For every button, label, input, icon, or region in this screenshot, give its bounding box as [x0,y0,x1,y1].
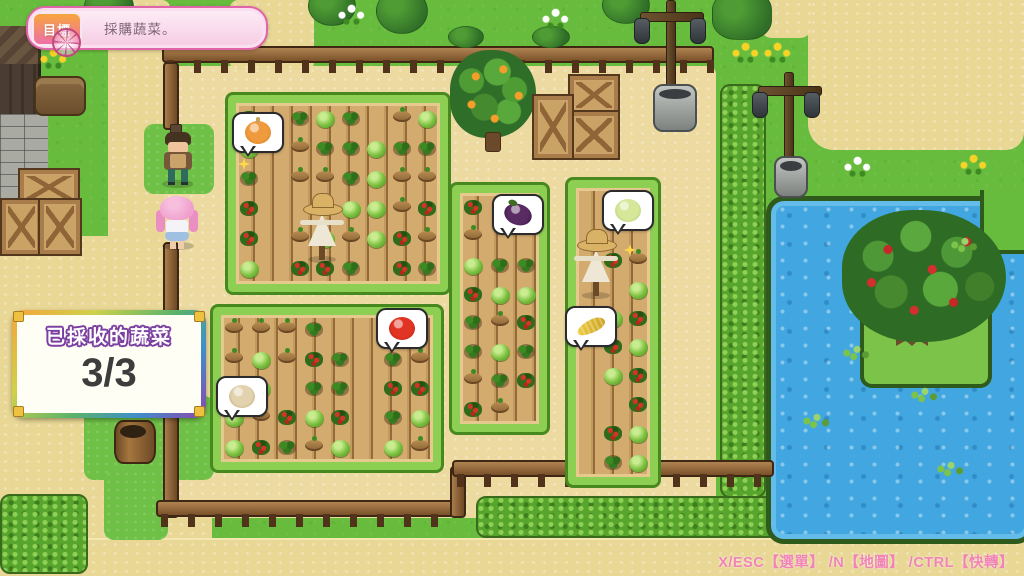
npc-farmer [158,130,198,188]
crop-seed [384,410,402,425]
crop-mound [411,440,429,451]
scarecrow-body [308,214,336,246]
crop-berry [629,311,647,326]
crop-berry [604,426,622,441]
flowers-yellow [958,152,988,176]
crop-cab [629,426,648,443]
crop-cab [411,410,430,427]
crop-seed [331,381,349,396]
crop-seed [305,381,323,396]
crop-berry [240,231,258,246]
lamp-post-base [774,156,808,198]
crate [38,198,82,256]
crop-mound [278,352,296,363]
crop-berry [464,287,482,302]
fence-left-upper [163,62,179,130]
npc-leg [181,169,188,185]
onion-icon [245,121,271,144]
crop-seed [342,171,360,186]
crop-cab [342,201,361,218]
crop-seed [305,322,323,337]
speech-bubble-tomato [376,308,428,349]
harvest-panel-body: 已採收的蔬菜 3/3 [17,315,201,413]
wheel-icon [52,28,81,57]
npc-apron [170,154,186,168]
crop-berry [517,373,535,388]
crop-seed [291,111,309,126]
water-plants [800,412,834,430]
flowers-white [540,6,570,30]
crop-cab [517,287,536,304]
crop-berry [464,402,482,417]
path-top-right [808,0,1024,150]
npc-leg [168,169,175,185]
crop-mound [491,402,509,413]
player-leg [178,241,184,249]
crop-cab [240,261,259,278]
crop-cab [629,282,648,299]
crop-berry [305,352,323,367]
harvest-panel: 已採收的蔬菜 3/3 [12,310,206,418]
corn-icon [575,314,608,339]
crop-mound [252,322,270,333]
harvest-count: 3/3 [81,351,137,396]
bush-top-right [712,0,772,40]
water-plants [840,344,874,362]
flowers-yellow [730,40,760,64]
crop-mound [464,229,482,240]
crop-seed [517,258,535,273]
scarecrow-hat-top [586,229,608,244]
crop-berry [393,231,411,246]
crop-seed [393,141,411,156]
crop-cab [629,339,648,356]
speech-bubble-corn [565,306,617,347]
water-plants [934,460,968,478]
panel-corner [194,311,205,322]
crop-seed [517,344,535,359]
flowers-white [336,2,366,26]
speech-bubble-garlic [216,376,268,417]
crop-mound [418,231,436,242]
speech-bubble-onion [232,112,284,153]
bush-patch-bottom-left [0,494,88,574]
crop-seed [491,258,509,273]
basket-opening [120,425,146,438]
crop-mound [464,373,482,384]
crop-seed [464,344,482,359]
crop-mound [393,171,411,182]
controls-hint: X/ESC【選單】 /N【地圖】 /CTRL【快轉】 [718,551,1014,572]
fence-posts [167,60,714,73]
garlic-icon [229,385,255,408]
crate [532,94,574,160]
lantern [690,18,706,44]
crop-seed [418,261,436,276]
orange-tree-trunk [485,132,501,152]
crop-cab [418,111,437,128]
crop-mound [393,111,411,122]
crop-cab [491,344,510,361]
crop-mound [305,440,323,451]
crop-mound [393,201,411,212]
fence-posts [161,514,458,527]
water-plants [948,236,982,254]
crop-cab [491,287,510,304]
crop-cab [367,141,386,158]
flowers-yellow [762,40,792,64]
well [653,84,697,132]
fence-top [162,46,714,73]
crop-cab [331,440,350,457]
crop-berry [278,410,296,425]
lantern [634,18,650,44]
crop-cab [225,440,244,457]
scarecrow [300,190,344,264]
crop-berry [331,410,349,425]
cabbage-icon [615,199,641,222]
player-character [156,194,198,252]
speech-bubble-cabbage [602,190,654,231]
lantern [752,92,768,118]
crate [0,198,43,256]
crop-seed [278,440,296,455]
crop-seed [342,141,360,156]
crop-cab [604,368,623,385]
crop-berry [393,261,411,276]
crop-seed [316,141,334,156]
harvest-panel-title: 已採收的蔬菜 [46,322,172,349]
crop-cab [316,111,335,128]
crop-cab [367,201,386,218]
goal-text: 採購蔬菜。 [104,18,177,38]
hedge-column [720,84,766,498]
tree [376,0,428,34]
crop-cab [252,352,271,369]
wood-pile [34,76,86,116]
crop-mound [291,171,309,182]
npc-shadow [162,180,194,188]
crop-mound [418,171,436,182]
crop-cab [367,231,386,248]
speech-bubble-eggplant [492,194,544,235]
lantern [804,92,820,118]
crop-cab [629,455,648,472]
eggplant-icon [501,200,534,229]
game-viewport[interactable]: 目標 採購蔬菜。 已採收的蔬菜 3/3 X/ESC【選單】 /N【地圖】 /CT… [0,0,1024,576]
scarecrow-body [582,250,610,282]
crop-mound [411,352,429,363]
crop-seed [491,373,509,388]
player-skirt [165,232,189,241]
crop-seed [464,315,482,330]
fence-bottom-left [156,500,458,527]
water-plants [908,386,942,404]
crop-mound [629,253,647,264]
crop-mound [316,171,334,182]
crop-cab [367,171,386,188]
panel-corner [13,406,24,417]
crop-cab [464,258,483,275]
flowers-white [842,154,872,178]
basket-barrel [114,420,156,464]
apple-tree-canopy [842,210,1006,342]
crop-berry [252,440,270,455]
crop-seed [604,455,622,470]
crop-seed [418,141,436,156]
crop-seed [240,171,258,186]
crop-mound [278,322,296,333]
crop-seed [342,111,360,126]
scarecrow-pole [319,244,325,260]
tomato-icon [389,317,415,340]
bush-row-bottom [476,496,778,538]
goal-banner: 目標 採購蔬菜。 [26,6,268,50]
crop-berry [411,381,429,396]
crop-seed [342,261,360,276]
scarecrow-pole [593,280,599,296]
crop-berry [464,200,482,215]
crop-mound [225,322,243,333]
crate [568,110,620,160]
scarecrow-arms [300,220,344,225]
crop-seed [331,352,349,367]
crop-mound [291,141,309,152]
scarecrow-arms [574,256,618,261]
crop-berry [384,381,402,396]
crop-cab [305,410,324,427]
shrub [448,26,484,48]
crop-cab [384,440,403,457]
crop-berry [240,201,258,216]
crop-berry [418,201,436,216]
panel-corner [13,311,24,322]
crop-mound [342,231,360,242]
scarecrow-hat-top [312,193,334,208]
crop-mound [491,315,509,326]
crop-berry [629,397,647,412]
crop-mound [225,352,243,363]
panel-corner [194,406,205,417]
player-hair [160,196,194,220]
crop-berry [517,315,535,330]
player-leg [170,241,176,249]
crop-berry [629,368,647,383]
